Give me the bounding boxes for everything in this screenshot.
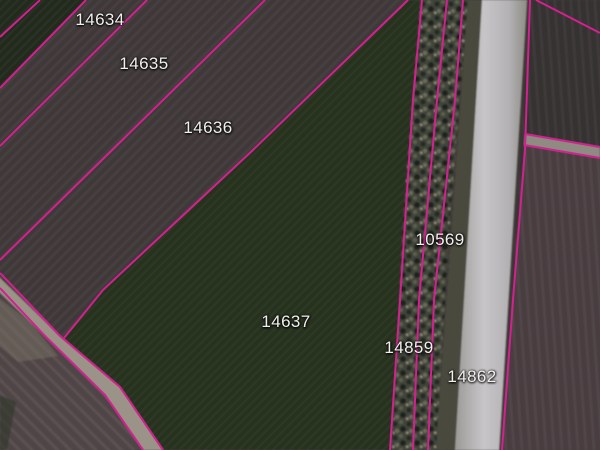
map-canvas[interactable] bbox=[0, 0, 600, 450]
map-viewport[interactable]: 14634 14635 14636 14637 10569 14859 1486… bbox=[0, 0, 600, 450]
aerial-imagery-layer bbox=[0, 0, 600, 450]
